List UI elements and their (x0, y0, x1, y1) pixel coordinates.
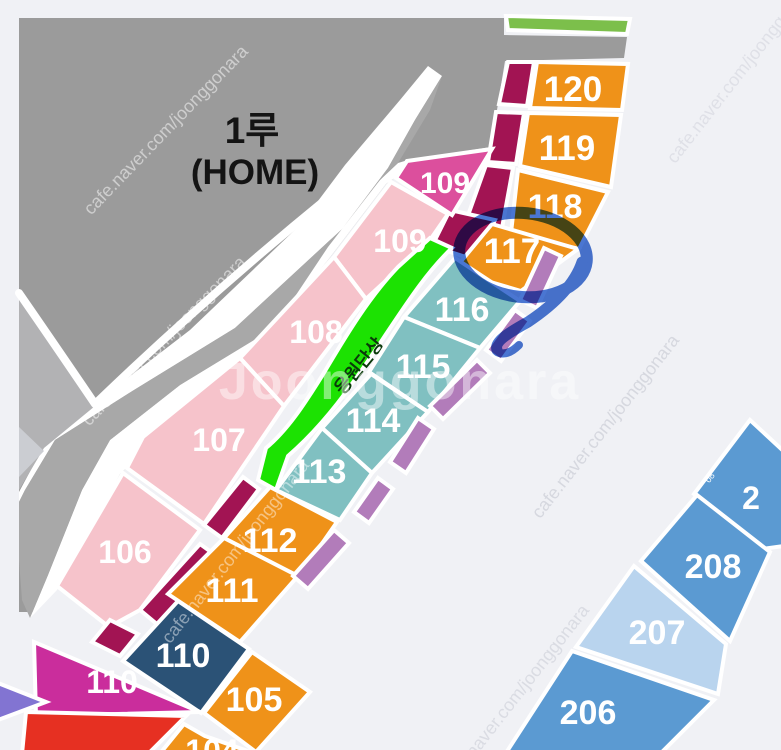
svg-text:105: 105 (226, 681, 283, 719)
svg-text:106: 106 (98, 534, 151, 570)
svg-text:104: 104 (185, 733, 239, 750)
svg-text:110: 110 (86, 664, 138, 700)
svg-text:120: 120 (544, 70, 602, 109)
svg-text:206: 206 (560, 694, 617, 732)
svg-text:107: 107 (192, 422, 245, 458)
svg-text:116: 116 (435, 291, 490, 329)
svg-text:108: 108 (289, 314, 342, 350)
svg-text:109: 109 (373, 223, 426, 259)
svg-text:Joonggonara: Joonggonara (219, 353, 581, 411)
svg-text:2: 2 (742, 480, 760, 516)
svg-text:119: 119 (539, 129, 595, 168)
svg-text:117: 117 (484, 232, 540, 271)
svg-text:207: 207 (629, 614, 686, 652)
svg-text:208: 208 (685, 548, 742, 586)
svg-text:109: 109 (420, 167, 470, 200)
svg-text:1루: 1루 (225, 110, 280, 151)
svg-text:(HOME): (HOME) (191, 153, 319, 192)
svg-text:110: 110 (156, 637, 211, 675)
